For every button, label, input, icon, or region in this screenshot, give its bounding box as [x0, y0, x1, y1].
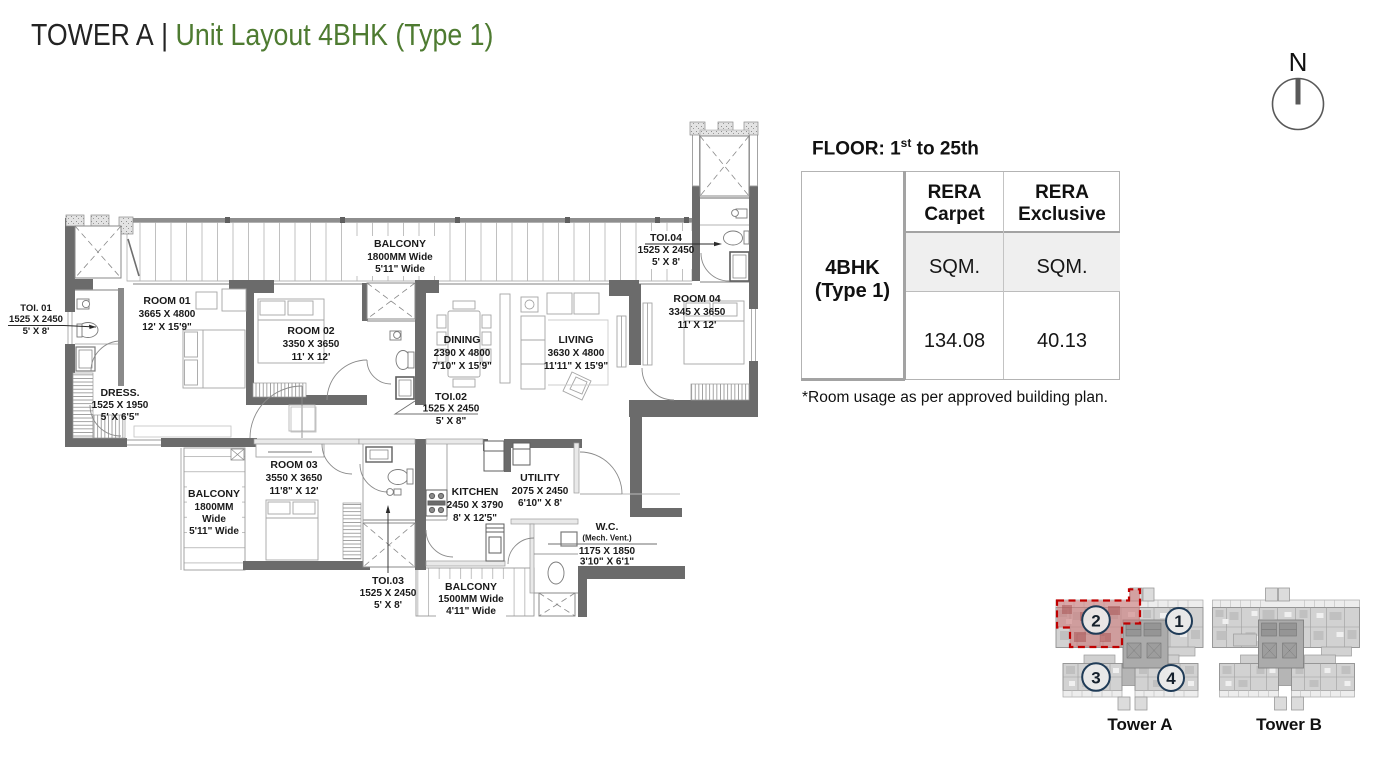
svg-text:2390 X 4800: 2390 X 4800 [434, 348, 491, 359]
svg-text:3350 X 3650: 3350 X 3650 [283, 339, 340, 350]
svg-text:2: 2 [1091, 612, 1100, 631]
svg-text:1525 X 2450: 1525 X 2450 [423, 404, 480, 415]
svg-text:W.C.: W.C. [596, 521, 619, 533]
svg-text:(Mech. Vent.): (Mech. Vent.) [582, 534, 632, 543]
svg-text:ROOM 01: ROOM 01 [143, 295, 190, 307]
svg-text:ROOM 04: ROOM 04 [673, 293, 720, 305]
svg-text:ROOM 03: ROOM 03 [270, 459, 317, 471]
svg-text:TOI. 01: TOI. 01 [20, 303, 52, 314]
svg-text:12' X 15'9": 12' X 15'9" [142, 322, 192, 333]
svg-text:2075 X 2450: 2075 X 2450 [512, 486, 569, 497]
svg-text:7'10" X 15'9": 7'10" X 15'9" [432, 361, 492, 372]
svg-text:2450 X 3790: 2450 X 3790 [447, 500, 504, 511]
svg-text:DRESS.: DRESS. [100, 387, 139, 399]
svg-text:3: 3 [1091, 669, 1100, 688]
svg-text:1175 X 1850: 1175 X 1850 [579, 546, 636, 557]
svg-text:1500MM Wide: 1500MM Wide [438, 594, 504, 605]
svg-text:TOI.02: TOI.02 [435, 391, 467, 403]
svg-text:5' X 6'5": 5' X 6'5" [101, 412, 140, 423]
svg-text:UTILITY: UTILITY [520, 472, 560, 484]
svg-text:5'11" Wide: 5'11" Wide [189, 526, 239, 537]
svg-text:3550 X 3650: 3550 X 3650 [266, 473, 323, 484]
svg-text:11' X 12': 11' X 12' [292, 352, 331, 363]
svg-text:BALCONY: BALCONY [374, 238, 426, 250]
svg-text:1525 X 1950: 1525 X 1950 [92, 400, 149, 411]
svg-text:LIVING: LIVING [558, 334, 593, 346]
svg-text:1: 1 [1174, 612, 1183, 631]
svg-text:3'10" X 6'1": 3'10" X 6'1" [580, 557, 635, 568]
svg-text:1800MM: 1800MM [195, 502, 234, 513]
svg-text:3630 X 4800: 3630 X 4800 [548, 348, 605, 359]
svg-text:11'8" X 12': 11'8" X 12' [270, 486, 319, 497]
svg-text:1525 X 2450: 1525 X 2450 [9, 314, 63, 325]
svg-text:3665 X 4800: 3665 X 4800 [139, 309, 196, 320]
svg-text:4: 4 [1166, 669, 1176, 688]
svg-text:3345 X 3650: 3345 X 3650 [669, 307, 726, 318]
svg-text:5' X 8': 5' X 8' [374, 600, 402, 611]
svg-text:KITCHEN: KITCHEN [452, 486, 499, 498]
svg-text:1800MM Wide: 1800MM Wide [367, 252, 433, 263]
svg-text:DINING: DINING [444, 334, 481, 346]
svg-text:ROOM 02: ROOM 02 [287, 325, 334, 337]
svg-text:5'11" Wide: 5'11" Wide [375, 264, 425, 275]
svg-text:11' X 12': 11' X 12' [678, 320, 717, 331]
svg-text:Wide: Wide [202, 514, 226, 525]
svg-text:BALCONY: BALCONY [188, 488, 240, 500]
svg-text:BALCONY: BALCONY [445, 581, 497, 593]
svg-text:5' X 8": 5' X 8" [436, 416, 467, 427]
svg-text:8' X 12'5": 8' X 12'5" [453, 513, 497, 524]
svg-text:5' X 8': 5' X 8' [652, 257, 680, 268]
svg-text:11'11" X 15'9": 11'11" X 15'9" [544, 361, 609, 372]
svg-text:6'10" X 8': 6'10" X 8' [518, 498, 562, 509]
svg-text:4'11" Wide: 4'11" Wide [446, 606, 496, 617]
svg-text:5' X 8': 5' X 8' [23, 326, 50, 337]
svg-text:TOI.04: TOI.04 [650, 232, 682, 244]
svg-text:1525 X 2450: 1525 X 2450 [360, 588, 417, 599]
svg-text:TOI.03: TOI.03 [372, 575, 404, 587]
svg-text:1525 X 2450: 1525 X 2450 [638, 245, 695, 256]
